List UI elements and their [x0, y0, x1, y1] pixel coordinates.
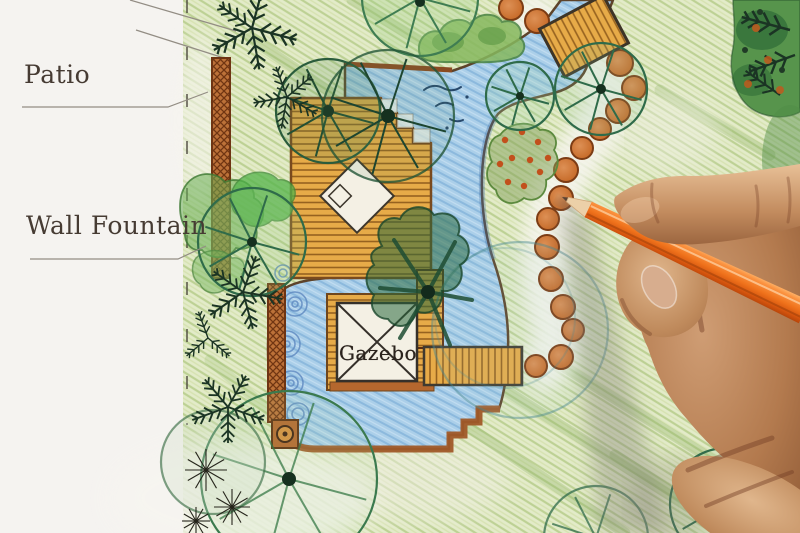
wall-fountain-label: Wall Fountain [26, 211, 207, 240]
gazebo-label: Gazebo [336, 341, 420, 365]
plan-photo: Patio Wall Fountain Gazebo [0, 0, 800, 533]
patio-label: Patio [24, 60, 90, 89]
landscape-plan-drawing [0, 0, 800, 533]
